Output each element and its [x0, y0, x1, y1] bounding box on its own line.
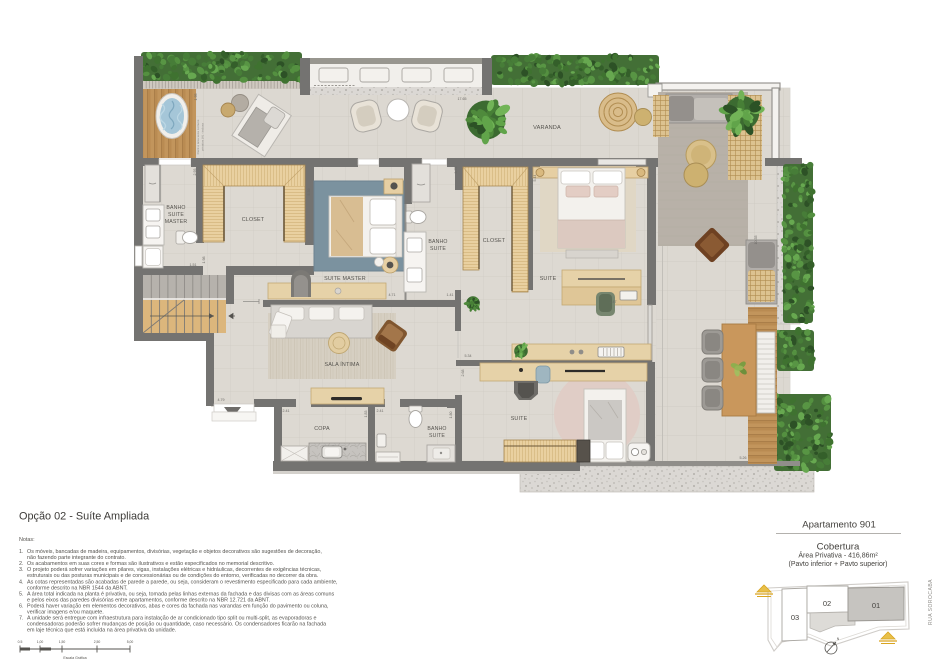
- svg-text:2.93: 2.93: [193, 169, 197, 176]
- svg-text:2.41: 2.41: [377, 409, 384, 413]
- svg-text:1.83: 1.83: [364, 411, 368, 418]
- svg-text:1.80: 1.80: [449, 412, 453, 419]
- svg-text:BANHO: BANHO: [166, 205, 185, 211]
- svg-text:5.34: 5.34: [465, 354, 472, 358]
- svg-text:1.: 1.: [19, 549, 24, 555]
- svg-text:5,00: 5,00: [127, 640, 134, 644]
- svg-text:1.95: 1.95: [194, 94, 198, 101]
- svg-text:1,00: 1,00: [37, 640, 44, 644]
- svg-text:MASTER: MASTER: [165, 219, 188, 225]
- svg-text:SUITE: SUITE: [540, 276, 557, 282]
- svg-text:RUA SOROCABA: RUA SOROCABA: [928, 579, 934, 625]
- svg-text:3.75: 3.75: [454, 167, 458, 174]
- svg-text:Apartamento 901: Apartamento 901: [802, 520, 876, 531]
- svg-text:4.: 4.: [19, 579, 24, 585]
- svg-text:SUITE: SUITE: [168, 212, 184, 218]
- svg-text:Área Privativa - 416,86m²: Área Privativa - 416,86m²: [798, 551, 878, 560]
- svg-text:Opção 02 - Suíte Ampliada: Opção 02 - Suíte Ampliada: [19, 511, 150, 523]
- svg-text:6.: 6.: [19, 603, 24, 609]
- svg-text:10.35: 10.35: [754, 236, 758, 245]
- svg-text:CLOSET: CLOSET: [242, 217, 265, 223]
- svg-text:0.5: 0.5: [18, 640, 23, 644]
- svg-text:1.51: 1.51: [190, 263, 197, 267]
- svg-text:1.47: 1.47: [610, 300, 617, 304]
- svg-text:02: 02: [823, 599, 831, 608]
- svg-text:5.26: 5.26: [740, 456, 747, 460]
- svg-text:SUITE: SUITE: [511, 416, 528, 422]
- svg-text:1.41: 1.41: [447, 293, 454, 297]
- svg-text:1.98: 1.98: [202, 257, 206, 264]
- svg-text:01: 01: [872, 601, 880, 610]
- svg-text:VARANDA: VARANDA: [533, 125, 561, 131]
- svg-text:4.79: 4.79: [218, 398, 225, 402]
- svg-text:5.39: 5.39: [307, 189, 311, 196]
- svg-text:SUITE: SUITE: [430, 246, 446, 252]
- svg-text:03: 03: [791, 613, 799, 622]
- svg-text:SALA ÍNTIMA: SALA ÍNTIMA: [325, 361, 360, 368]
- svg-text:(Pavto inferior + Pavto superi: (Pavto inferior + Pavto superior): [788, 561, 887, 568]
- svg-text:2,50: 2,50: [94, 640, 101, 644]
- svg-text:Cobertura: Cobertura: [817, 542, 860, 553]
- svg-text:2.41: 2.41: [283, 409, 290, 413]
- svg-text:5.: 5.: [19, 591, 24, 597]
- svg-text:N: N: [837, 637, 840, 641]
- svg-text:17.65: 17.65: [458, 97, 467, 101]
- svg-text:privativa (A) - inclusa: privativa (A) - inclusa: [201, 123, 205, 151]
- svg-text:7.: 7.: [19, 616, 24, 622]
- svg-text:em laje técnica que está inclu: em laje técnica que está incluída na áre…: [27, 628, 176, 634]
- svg-text:BANHO: BANHO: [427, 426, 446, 432]
- svg-text:BANHO: BANHO: [428, 239, 447, 245]
- svg-text:3.: 3.: [19, 567, 24, 573]
- svg-text:COPA: COPA: [314, 426, 330, 432]
- svg-text:SUITE: SUITE: [429, 433, 445, 439]
- svg-text:Notas:: Notas:: [19, 537, 35, 543]
- svg-text:Deck e área seca comuns: Deck e área seca comuns: [196, 119, 200, 154]
- svg-text:4.71: 4.71: [389, 293, 396, 297]
- svg-text:5.44: 5.44: [533, 175, 537, 182]
- svg-text:Escala Gráfica: Escala Gráfica: [63, 656, 86, 660]
- svg-text:CLOSET: CLOSET: [483, 238, 506, 244]
- svg-text:SUITE MASTER: SUITE MASTER: [324, 276, 366, 282]
- svg-text:1,50: 1,50: [59, 640, 66, 644]
- svg-text:2.68: 2.68: [461, 370, 465, 377]
